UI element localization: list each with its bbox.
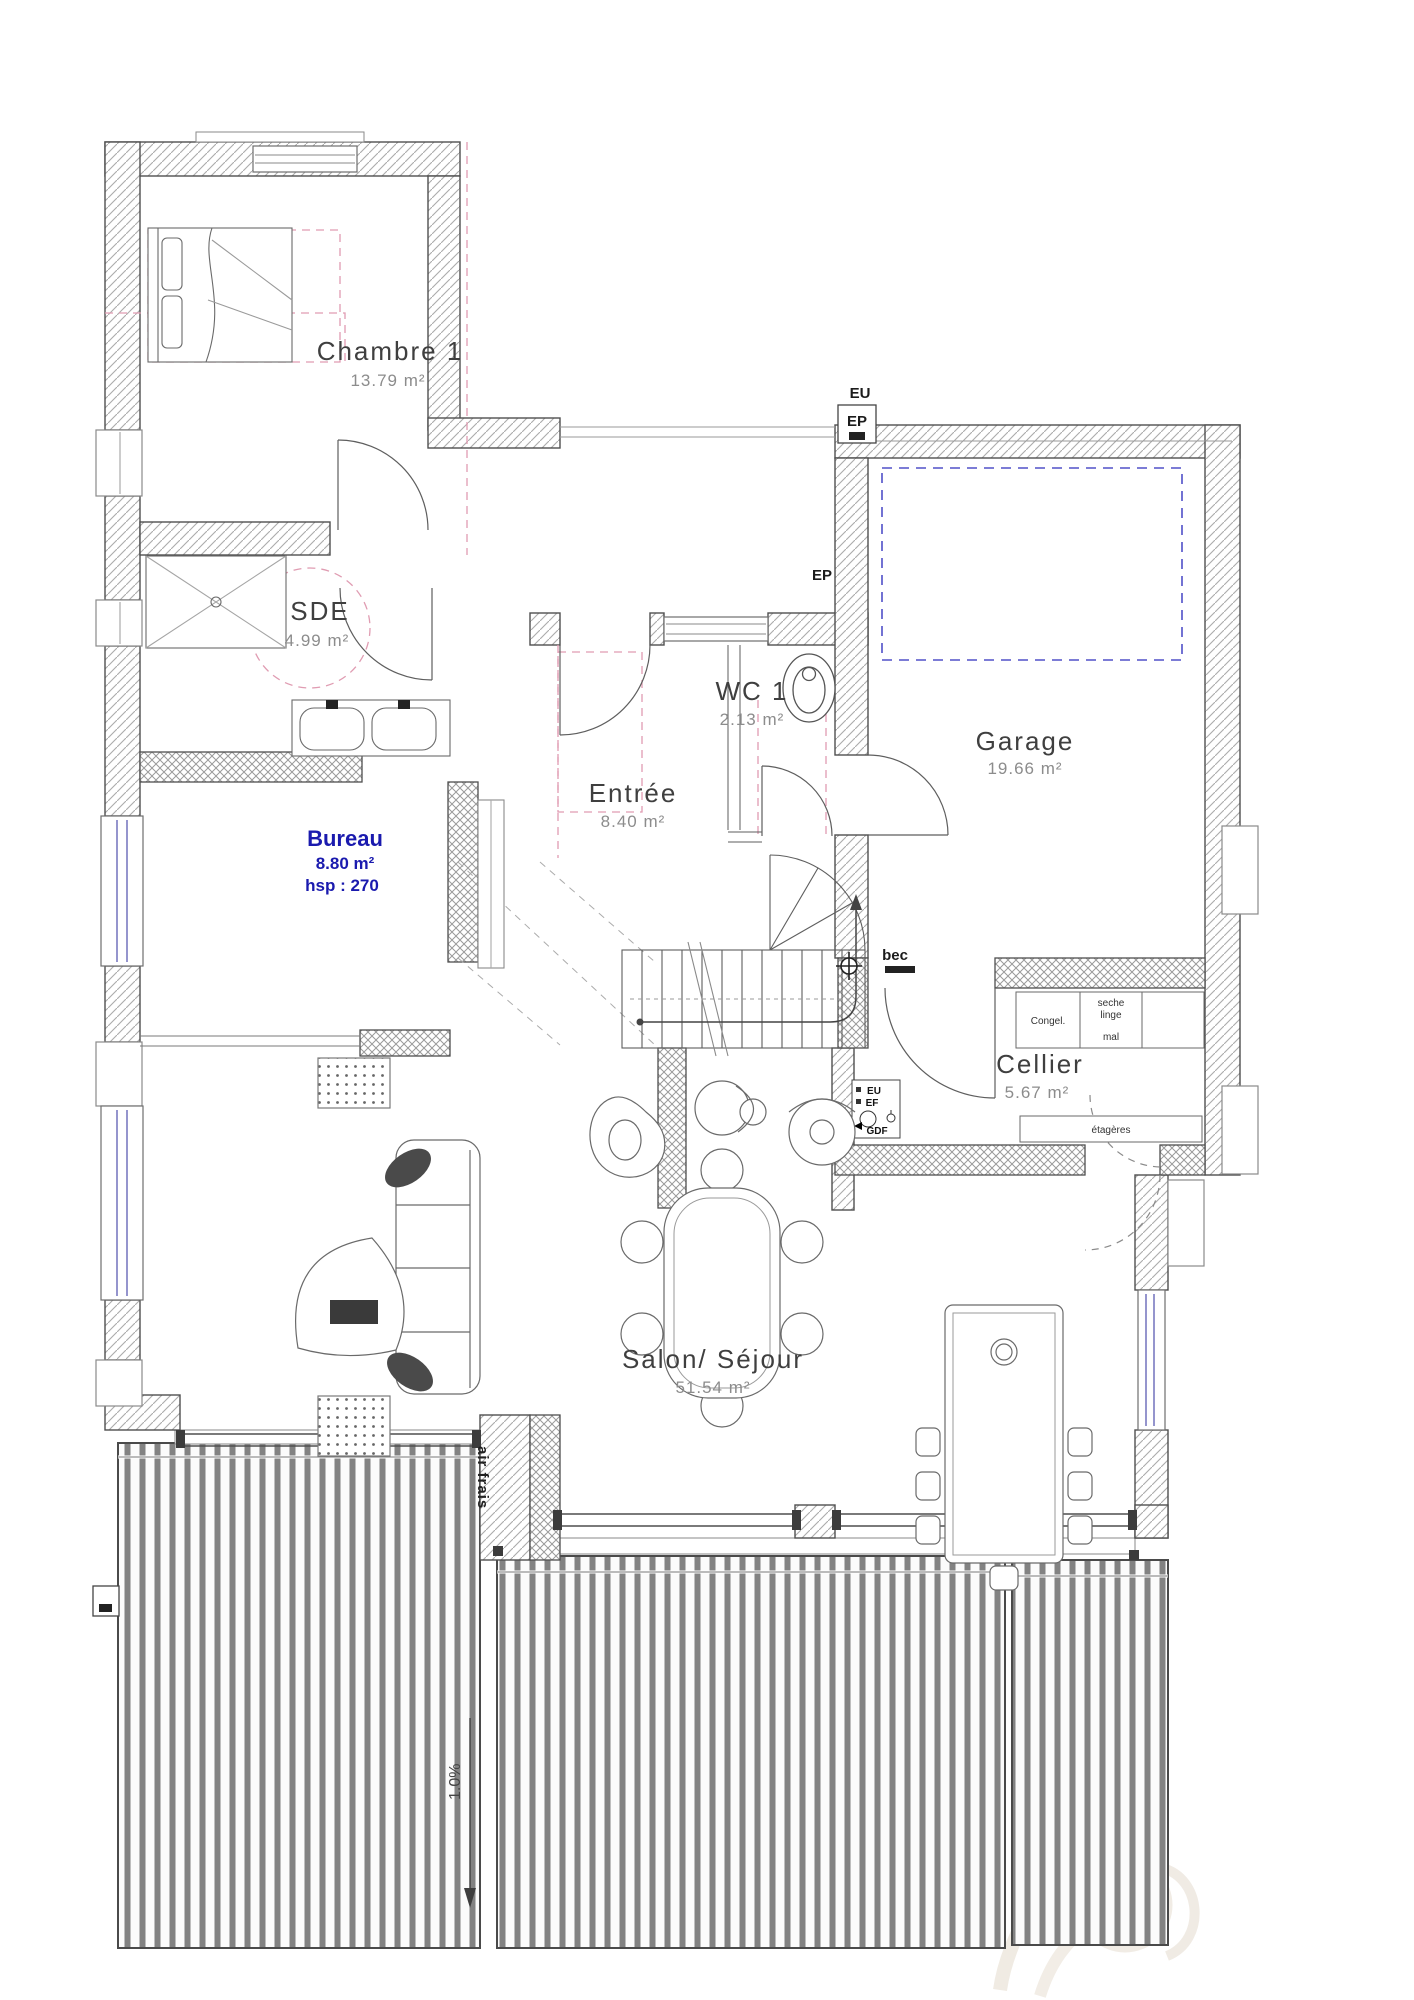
shutter-box: [96, 600, 142, 646]
room-label-chambre1: Chambre 1: [317, 336, 464, 366]
side-table: [695, 1081, 766, 1135]
toilet-icon: [783, 654, 835, 722]
shower: [146, 556, 286, 648]
window-bureau: [101, 816, 143, 966]
floor-plan-page: Chambre 1 13.79 m² SDE 4.99 m² Bureau 8.…: [0, 0, 1414, 2000]
air-frais-label: air frais: [474, 1446, 491, 1509]
room-label-cellier: Cellier: [996, 1049, 1084, 1079]
double-sink-vanity: [292, 700, 450, 756]
shutter-box: [1222, 1086, 1258, 1174]
doors: [338, 440, 995, 1098]
room-label-garage: Garage: [976, 726, 1075, 756]
deck-right: [1012, 1560, 1168, 1945]
stool: [916, 1516, 940, 1544]
utility-ef-label: EF: [866, 1098, 879, 1109]
tv-icon: [330, 1300, 378, 1324]
window-entree: [664, 617, 768, 641]
door-garage: [868, 755, 948, 835]
room-area-entree: 8.40 m²: [601, 812, 666, 831]
porch-lines: [560, 427, 835, 437]
radiator: [318, 1058, 390, 1108]
bureau-half-wall: [140, 1036, 360, 1046]
room-label-sde: SDE: [290, 596, 349, 626]
deck-middle: [497, 1556, 1005, 1948]
eu-label: EU: [850, 385, 871, 402]
shutter-box: [196, 132, 364, 142]
stair-direction-arrow: [637, 894, 863, 1026]
room-area-salon: 51.54 m²: [675, 1378, 750, 1397]
stool: [916, 1472, 940, 1500]
room-area-wc1: 2.13 m²: [720, 710, 785, 729]
stool: [990, 1566, 1018, 1590]
chair: [701, 1149, 743, 1191]
utility-eu-label: EU: [867, 1086, 881, 1097]
room-label-bureau: Bureau: [307, 826, 383, 851]
tv-unit: [296, 1238, 404, 1356]
room-area-bureau: 8.80 m²: [316, 854, 375, 873]
window-chambre: [253, 146, 357, 172]
shutter-box: [1222, 826, 1258, 914]
shutter-box: [1168, 1180, 1204, 1266]
bed: [148, 228, 292, 362]
door-sde: [340, 588, 432, 680]
room-area-chambre1: 13.79 m²: [350, 371, 425, 390]
faucet-icon: [398, 700, 410, 709]
stool: [1068, 1516, 1092, 1544]
armchair: [590, 1097, 665, 1177]
deck-left: [118, 1443, 480, 1948]
stairs: [622, 855, 865, 1056]
stool: [1068, 1428, 1092, 1456]
room-label-wc1: WC 1: [716, 676, 789, 706]
room-label-entree: Entrée: [589, 778, 678, 808]
ep-entree-label: EP: [812, 567, 832, 584]
faucet-icon: [326, 700, 338, 709]
window-salon-east: [1138, 1290, 1165, 1430]
shelves-label: étagères: [1092, 1125, 1131, 1136]
door-front: [560, 645, 650, 735]
window-salon-west: [101, 1106, 143, 1300]
stool: [1068, 1472, 1092, 1500]
vestiaire-cabinet: [478, 800, 504, 968]
ep-garage-label: EP: [847, 413, 867, 430]
door-cellier: [885, 988, 995, 1098]
shutter-box: [96, 1360, 142, 1406]
slope-label: 1.0%: [447, 1764, 464, 1800]
bec-label: bec: [882, 947, 908, 964]
appliance-box: [1142, 992, 1204, 1048]
stool: [916, 1428, 940, 1456]
room-area-garage: 19.66 m²: [987, 759, 1062, 778]
dryer-label-mid: linge: [1100, 1010, 1122, 1021]
radiator: [318, 1396, 390, 1456]
room-label-salon: Salon/ Séjour: [622, 1344, 804, 1374]
shutter-box: [96, 1042, 142, 1106]
dryer-label-top: seche: [1098, 998, 1125, 1009]
room-area-sde: 4.99 m²: [285, 631, 350, 650]
garage-parking-outline: [882, 468, 1182, 660]
room-area-cellier: 5.67 m²: [1005, 1083, 1070, 1102]
chair: [621, 1221, 663, 1263]
floor-plan-drawing: Chambre 1 13.79 m² SDE 4.99 m² Bureau 8.…: [0, 0, 1414, 2000]
chair: [781, 1221, 823, 1263]
utility-gdf-label: GDF: [866, 1126, 887, 1137]
furniture-chambre: [148, 228, 292, 362]
door-chambre: [338, 440, 428, 530]
room-hsp-bureau: hsp : 270: [305, 876, 379, 895]
shutter-box: [96, 430, 142, 496]
wood-stove: [789, 1099, 855, 1165]
dryer-label-bottom: mal: [1103, 1032, 1119, 1043]
freezer-label: Congel.: [1031, 1016, 1065, 1027]
furniture-wc: [783, 654, 835, 722]
